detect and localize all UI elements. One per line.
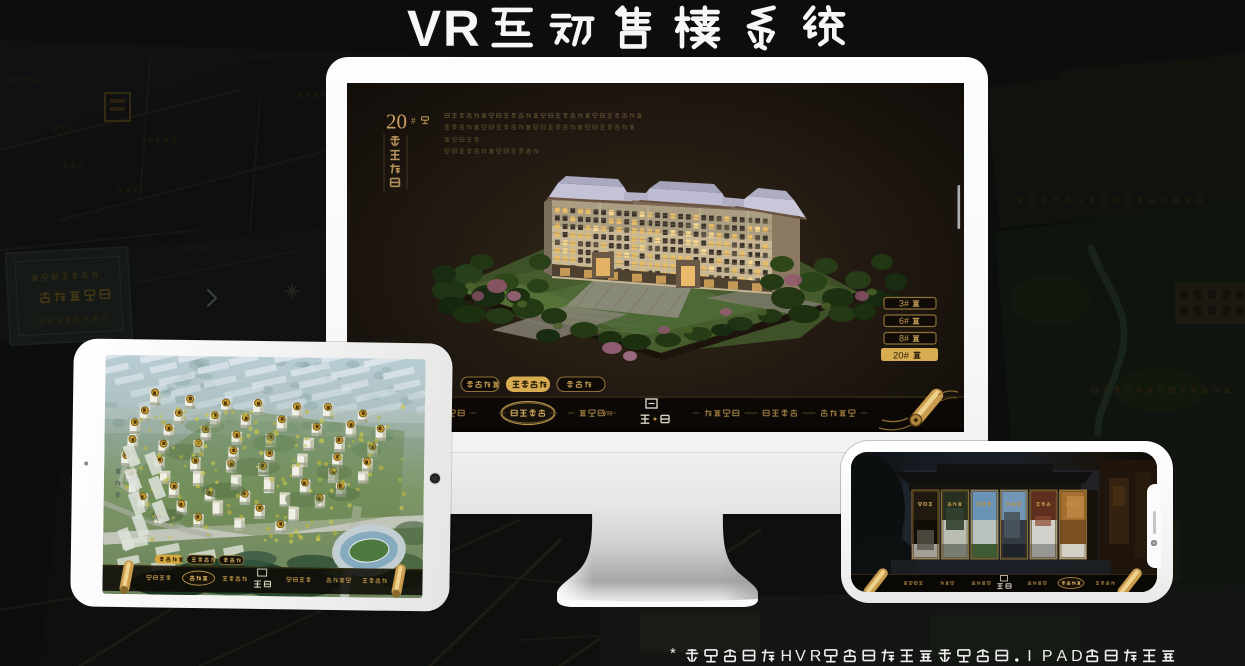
svg-text:R: R	[810, 648, 822, 665]
svg-text:P: P	[1042, 648, 1053, 665]
svg-text:*: *	[670, 645, 676, 662]
svg-text:VR: VR	[602, 409, 613, 418]
svg-text:D: D	[1071, 648, 1083, 665]
svg-text:VR: VR	[407, 0, 482, 57]
svg-text:V: V	[795, 648, 806, 665]
svg-text:6#: 6#	[899, 316, 909, 326]
svg-text:I: I	[1027, 648, 1031, 665]
svg-text:20: 20	[386, 110, 407, 134]
svg-text:H: H	[781, 648, 793, 665]
svg-text:8#: 8#	[899, 334, 909, 344]
svg-text:20#: 20#	[893, 351, 910, 362]
svg-text:A: A	[1057, 648, 1068, 665]
svg-text:3#: 3#	[899, 299, 909, 309]
svg-text:#: #	[411, 116, 416, 126]
